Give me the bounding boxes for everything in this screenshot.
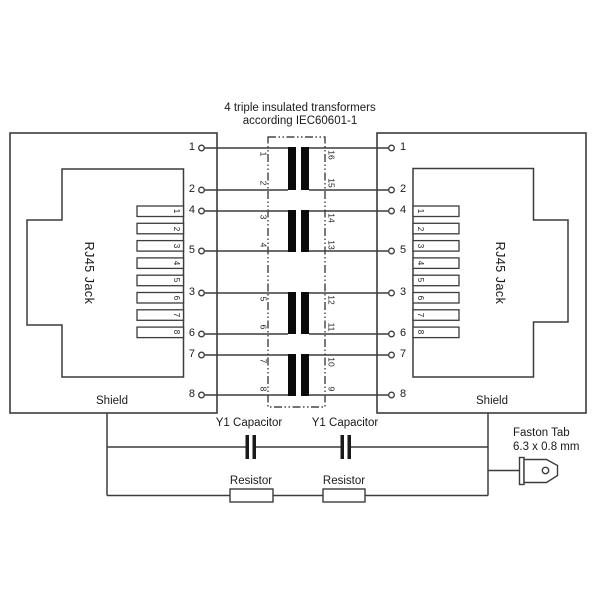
xfmr-pin-8: 8 (259, 387, 268, 392)
terminal-circle (199, 208, 205, 214)
right-terminals (389, 145, 395, 398)
xfmr-pin-1: 1 (259, 152, 268, 157)
terminal-circle (389, 392, 395, 398)
resistor1-label: Resistor (211, 475, 291, 487)
left-jack-contact-slots (137, 206, 184, 338)
right-wire-label-2: 2 (400, 183, 406, 195)
xfmr-pin-6: 6 (259, 325, 268, 330)
transformer3-primary-bar (288, 292, 296, 334)
faston-tab-symbol (520, 458, 558, 485)
right-jack-pin-1: 1 (416, 209, 424, 213)
diagram-title-line1: 4 triple insulated transformers (180, 102, 420, 114)
right-wire-label-3: 3 (400, 286, 406, 298)
xfmr-pin-4: 4 (259, 243, 268, 248)
right-jack-pin-5: 5 (416, 278, 424, 282)
xfmr-pin-14: 14 (327, 213, 336, 222)
right-jack-body-outline (413, 169, 568, 378)
faston-tab-label-line2: 6.3 x 0.8 mm (513, 441, 579, 453)
transformer1-primary-bar (288, 147, 296, 190)
xfmr-pin-12: 12 (327, 295, 336, 304)
resistor2-label: Resistor (304, 475, 384, 487)
terminal-circle (389, 187, 395, 193)
left-wire-label-8: 8 (175, 388, 195, 400)
right-wire-label-4: 4 (400, 204, 406, 216)
y1-capacitor2-label: Y1 Capacitor (295, 417, 395, 429)
left-jack-pin-3: 3 (172, 244, 180, 248)
schematic-canvas: 4 triple insulated transformers accordin… (0, 0, 600, 600)
transformer2-primary-bar (288, 210, 296, 252)
capacitor2-plate (348, 435, 352, 459)
xfmr-pin-16: 16 (327, 150, 336, 159)
xfmr-pin-2: 2 (259, 181, 268, 186)
left-jack-body-outline (27, 169, 184, 377)
right-wire-label-7: 7 (400, 348, 406, 360)
faston-tab-hole (542, 467, 548, 473)
left-jack-pin-6: 6 (172, 296, 180, 300)
right-wire-label-1: 1 (400, 141, 406, 153)
transformer1-secondary-bar (301, 147, 309, 190)
faston-tab-blade (524, 460, 558, 483)
xfmr-pin-3: 3 (259, 215, 268, 220)
left-jack-pin-2: 2 (172, 227, 180, 231)
capacitor1-plate (253, 435, 257, 459)
xfmr-pin-5: 5 (259, 297, 268, 302)
left-wire-label-1: 1 (175, 141, 195, 153)
left-jack-pin-1: 1 (172, 209, 180, 213)
left-jack-pin-8: 8 (172, 330, 180, 334)
transformer2-secondary-bar (301, 210, 309, 252)
transformer4-primary-bar (288, 354, 296, 396)
terminal-circle (389, 208, 395, 214)
right-jack-contact-slots (413, 206, 459, 338)
isolation-boundary-dashdot (268, 137, 325, 407)
right-wire-label-8: 8 (400, 388, 406, 400)
terminal-circle (199, 145, 205, 151)
xfmr-pin-13: 13 (327, 240, 336, 249)
right-shield-label: Shield (452, 395, 532, 407)
xfmr-pin-10: 10 (327, 357, 336, 366)
left-wire-label-7: 7 (175, 348, 195, 360)
xfmr-pin-11: 11 (327, 323, 336, 332)
right-jack-pin-4: 4 (416, 261, 424, 265)
terminal-circle (389, 331, 395, 337)
transformer3-secondary-bar (301, 292, 309, 334)
right-jack-pin-7: 7 (416, 313, 424, 317)
terminal-circle (199, 290, 205, 296)
resistor1-body (230, 489, 273, 502)
right-jack-pin-3: 3 (416, 244, 424, 248)
left-jack-pin-5: 5 (172, 278, 180, 282)
right-wire-label-5: 5 (400, 244, 406, 256)
left-jack-label: RJ45 Jack (82, 242, 96, 305)
diagram-title-line2: according IEC60601-1 (180, 115, 420, 127)
terminal-circle (199, 248, 205, 254)
xfmr-pin-9: 9 (327, 387, 336, 392)
terminal-circle (389, 290, 395, 296)
left-jack-pin-4: 4 (172, 261, 180, 265)
y1-capacitor1-label: Y1 Capacitor (199, 417, 299, 429)
left-shield-label: Shield (72, 395, 152, 407)
terminal-circle (389, 145, 395, 151)
right-jack-pin-6: 6 (416, 296, 424, 300)
left-terminals (199, 145, 205, 398)
left-jack-shield-box (10, 133, 217, 413)
capacitor1-plate (246, 435, 250, 459)
right-jack-pin-2: 2 (416, 227, 424, 231)
transformer-core-bars (288, 147, 309, 396)
right-jack-pin-8: 8 (416, 330, 424, 334)
right-wire-label-6: 6 (400, 327, 406, 339)
xfmr-pin-15: 15 (327, 178, 336, 187)
terminal-circle (389, 248, 395, 254)
terminal-circle (199, 352, 205, 358)
faston-tab-label-line1: Faston Tab (513, 427, 570, 439)
terminal-circle (199, 187, 205, 193)
xfmr-pin-7: 7 (259, 359, 268, 364)
terminal-circle (389, 352, 395, 358)
transformer4-secondary-bar (301, 354, 309, 396)
left-wire-label-2: 2 (175, 183, 195, 195)
right-jack-label: RJ45 Jack (493, 242, 507, 305)
right-jack-shield-box (377, 133, 586, 413)
terminal-circle (199, 331, 205, 337)
resistor2-body (323, 489, 365, 502)
left-jack-pin-7: 7 (172, 313, 180, 317)
terminal-circle (199, 392, 205, 398)
capacitor2-plate (341, 435, 345, 459)
